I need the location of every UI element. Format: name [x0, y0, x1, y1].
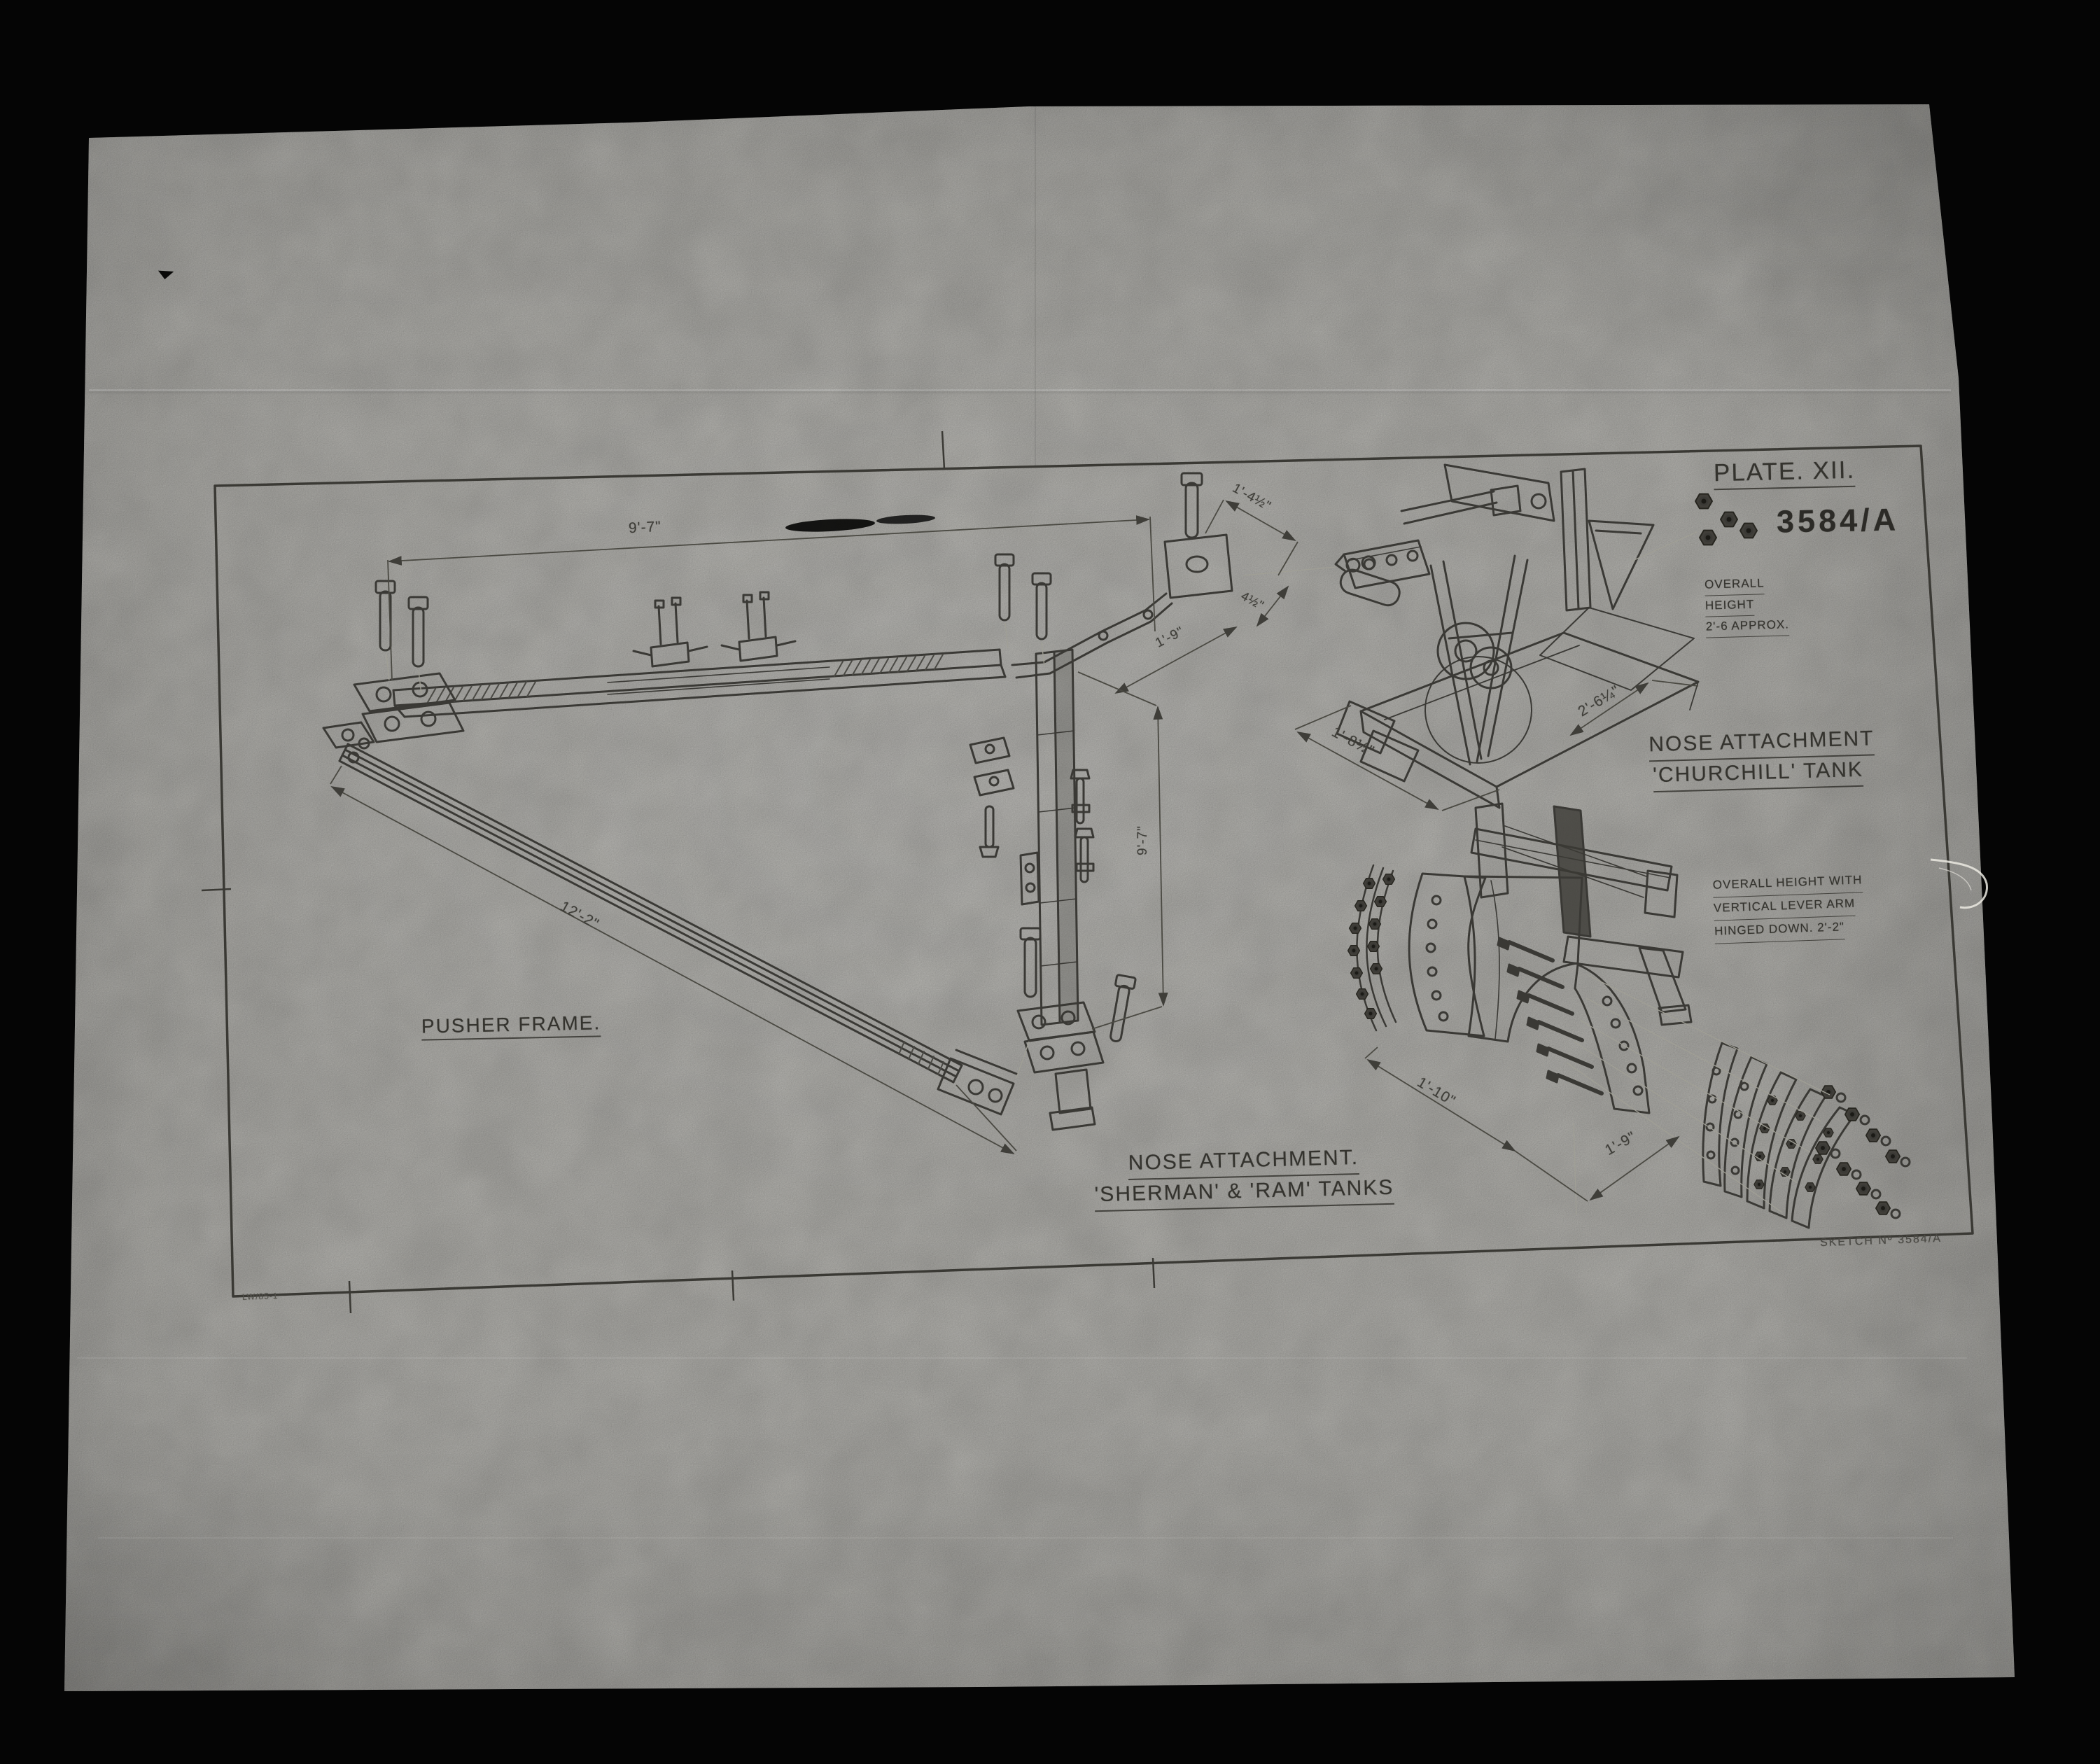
sherman-attachment-art	[1348, 804, 1910, 1228]
label-line: PUSHER FRAME.	[421, 1011, 601, 1040]
note-line: OVERALL	[1704, 573, 1765, 596]
corner-mark: LW/85-1	[242, 1291, 279, 1302]
note-line: HINGED DOWN. 2'-2"	[1714, 916, 1845, 944]
dim-link-vertical: 9'-7"	[1135, 825, 1151, 855]
scratch-artifact	[1931, 860, 1987, 908]
note-line: HEIGHT	[1705, 595, 1755, 617]
drawing-number: 3584/A	[1777, 501, 1900, 540]
label-line: 'CHURCHILL' TANK	[1653, 756, 1864, 792]
pusher-frame-label: PUSHER FRAME.	[421, 1011, 601, 1040]
sherman-attachment-label: NOSE ATTACHMENT. 'SHERMAN' & 'RAM' TANKS	[1093, 1143, 1395, 1212]
lever-arm-note: OVERALL HEIGHT WITH VERTICAL LEVER ARM H…	[1712, 869, 1864, 944]
churchill-attachment-label: NOSE ATTACHMENT 'CHURCHILL' TANK	[1648, 725, 1867, 793]
plate-label-text: PLATE. XII.	[1714, 456, 1856, 491]
churchill-height-note: OVERALL HEIGHT 2'-6 APPROX.	[1704, 573, 1790, 638]
plate-label: PLATE. XII.	[1714, 456, 1856, 491]
note-line: 2'-6 APPROX.	[1705, 615, 1789, 638]
scanned-drawing-page: PLATE. XII. 3584/A OVERALL HEIGHT 2'-6 A…	[0, 0, 2100, 1764]
dim-pusher-top: 9'-7"	[628, 519, 661, 537]
